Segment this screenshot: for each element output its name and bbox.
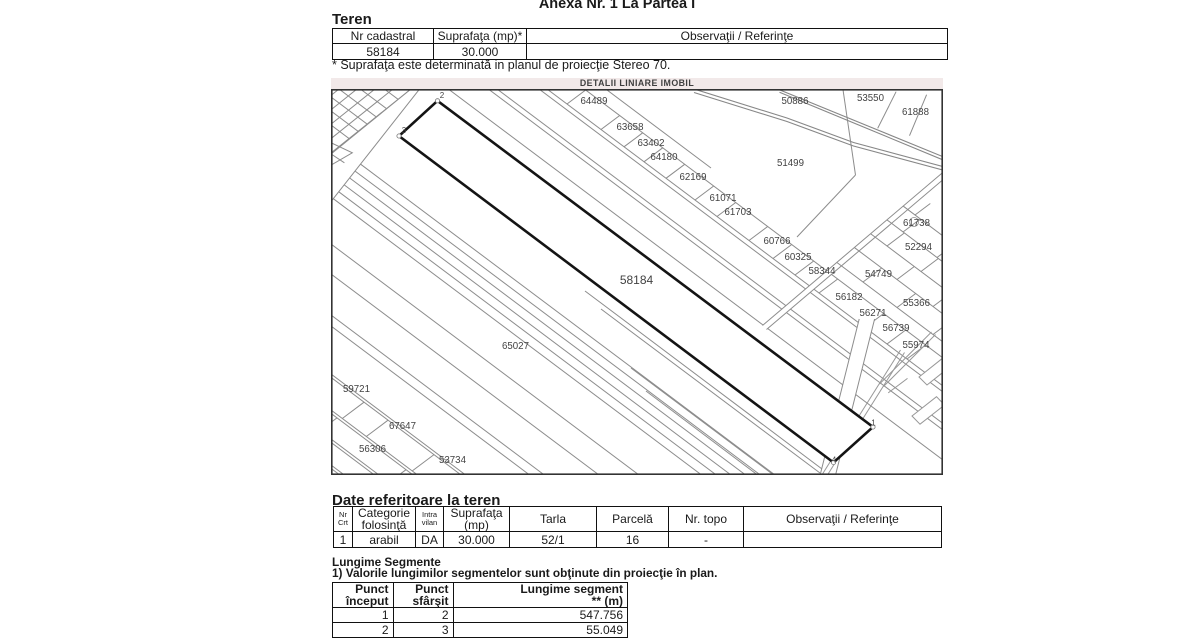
svg-text:51499: 51499 <box>777 158 804 169</box>
svg-text:4: 4 <box>832 456 837 465</box>
svg-text:1: 1 <box>871 419 876 428</box>
svg-text:56306: 56306 <box>359 444 386 455</box>
svg-text:53550: 53550 <box>857 93 885 104</box>
svg-text:53734: 53734 <box>439 455 467 466</box>
svg-text:60325: 60325 <box>785 252 812 263</box>
svg-text:3: 3 <box>402 126 407 135</box>
svg-text:54749: 54749 <box>865 269 892 280</box>
svg-text:62169: 62169 <box>680 172 707 183</box>
svg-text:56271: 56271 <box>860 308 887 319</box>
svg-text:61888: 61888 <box>902 107 929 118</box>
svg-text:61738: 61738 <box>903 218 930 229</box>
svg-text:63658: 63658 <box>617 122 644 133</box>
svg-text:58344: 58344 <box>809 266 837 277</box>
svg-text:63402: 63402 <box>638 138 665 149</box>
svg-text:60766: 60766 <box>764 236 791 247</box>
svg-text:67647: 67647 <box>389 421 416 432</box>
svg-text:56182: 56182 <box>836 292 863 303</box>
svg-text:59721: 59721 <box>343 384 370 395</box>
svg-text:64180: 64180 <box>651 152 679 163</box>
svg-text:65027: 65027 <box>502 341 529 352</box>
svg-text:2: 2 <box>440 91 445 100</box>
svg-text:61703: 61703 <box>725 207 752 218</box>
svg-text:61071: 61071 <box>710 193 737 204</box>
svg-text:55366: 55366 <box>903 298 930 309</box>
svg-text:55974: 55974 <box>903 340 931 351</box>
svg-text:50886: 50886 <box>782 96 809 107</box>
svg-text:58184: 58184 <box>620 273 654 287</box>
svg-text:56739: 56739 <box>883 323 910 334</box>
svg-text:64489: 64489 <box>581 96 608 107</box>
svg-text:52294: 52294 <box>905 242 933 253</box>
